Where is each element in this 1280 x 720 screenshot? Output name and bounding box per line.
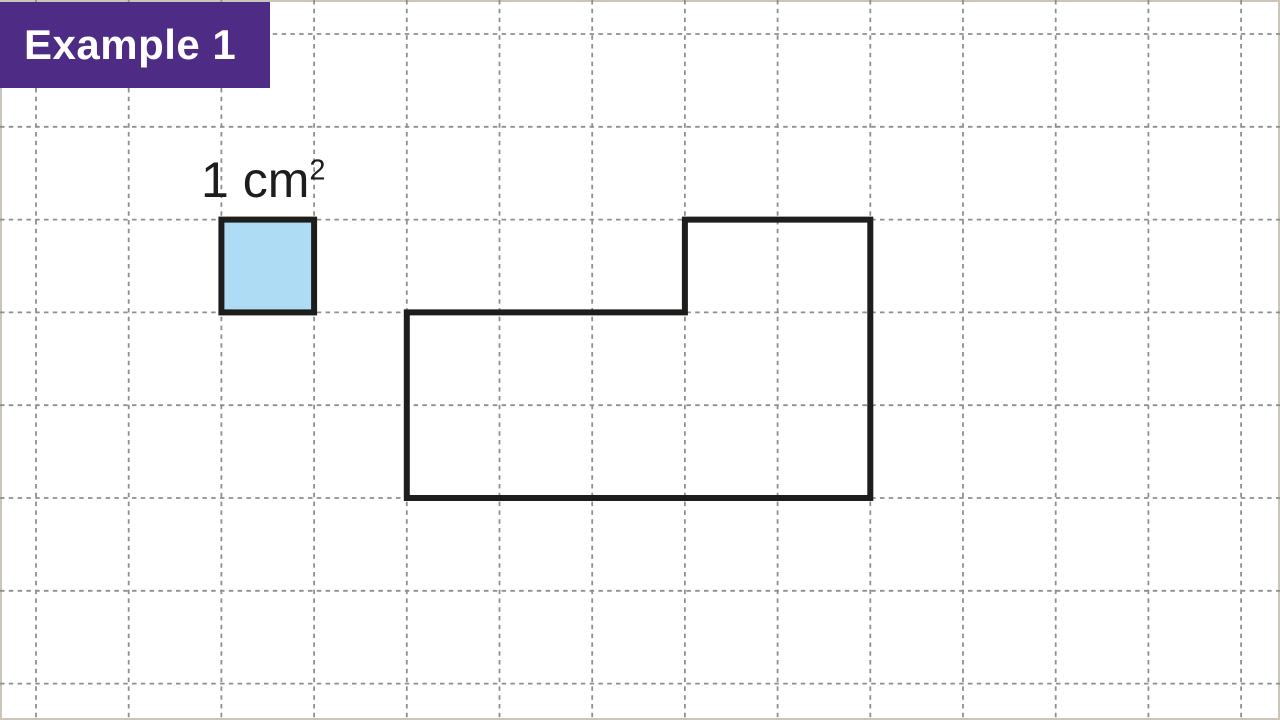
example-badge-label: Example 1 <box>24 21 236 69</box>
unit-area-label-text: 1 cm <box>201 152 309 208</box>
composite-shape <box>407 220 871 498</box>
unit-area-label: 1 cm2 <box>201 153 326 208</box>
unit-area-label-exponent: 2 <box>309 154 325 186</box>
example-badge: Example 1 <box>0 2 270 88</box>
unit-square <box>221 220 314 313</box>
worksheet-slide: Example 1 1 cm2 <box>0 0 1280 720</box>
grid-canvas <box>0 0 1280 720</box>
